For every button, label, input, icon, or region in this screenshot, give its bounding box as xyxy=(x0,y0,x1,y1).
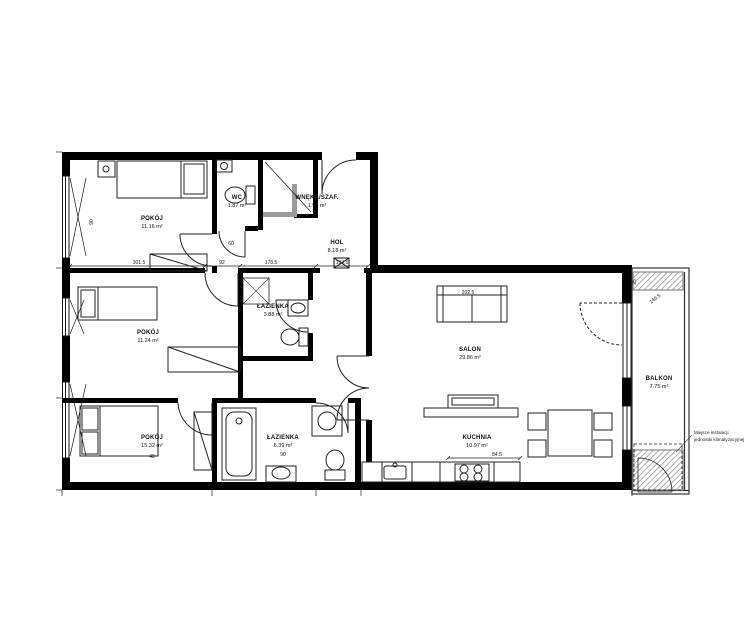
room-label-wc-area: 1.87 m² xyxy=(228,203,247,209)
room-label-balkon-area: 7.75 m² xyxy=(650,384,669,390)
dim-label-6: 90 xyxy=(280,452,286,458)
dim-label-0: 301.5 xyxy=(133,260,146,266)
furniture-niche xyxy=(265,162,311,212)
room-label-pokoj-3-name: POKÓJ xyxy=(141,433,163,441)
ac-note-line-2: jednostki klimatyzacyjnej xyxy=(693,437,744,442)
room-label-pokoj-1-area: 11.16 m² xyxy=(141,224,162,230)
room-label-hol-area: 8.18 m² xyxy=(328,248,347,254)
room-label-balkon-name: BALKON xyxy=(646,376,673,382)
ac-note-line-1: Miejsce instalacji xyxy=(694,430,728,435)
room-label-pokoj-1-name: POKÓJ xyxy=(141,214,163,222)
room-label-lazienka-1-name: ŁAZIENKA xyxy=(257,304,289,310)
floor-plan-drawing: POKÓJ 11.16 m² WC 1.87 m² WNĘKA/SZAF. 1.… xyxy=(0,0,750,625)
room-label-kuchnia-area: 10.97 m² xyxy=(466,443,488,449)
dim-label-8: 90 xyxy=(89,219,95,225)
door-swings xyxy=(178,160,622,435)
room-label-kuchnia-name: KUCHNIA xyxy=(462,435,492,441)
dim-label-2: 178.5 xyxy=(265,260,278,266)
dim-label-11: 146.5 xyxy=(649,293,663,306)
dim-label-1: 92 xyxy=(219,260,225,266)
room-label-wneka-name: WNĘKA/SZAF. xyxy=(295,195,338,201)
dim-label-10: 25 xyxy=(632,279,638,285)
room-label-lazienka-2-name: ŁAZIENKA xyxy=(267,435,299,441)
dim-label-4: 202.5 xyxy=(462,290,475,296)
dim-label-9: 60 xyxy=(228,241,234,247)
floor-plan-canvas: POKÓJ 11.16 m² WC 1.87 m² WNĘKA/SZAF. 1.… xyxy=(0,0,750,625)
room-label-wc-name: WC xyxy=(232,195,243,201)
room-label-salon-area: 29.86 m² xyxy=(459,355,481,361)
ac-unit-note: Miejsce instalacji jednostki klimatyzacy… xyxy=(693,430,744,442)
room-label-lazienka-2-area: 6.39 m² xyxy=(274,443,293,449)
room-label-pokoj-2-name: POKÓJ xyxy=(137,328,159,336)
room-label-salon-name: SALON xyxy=(459,347,481,353)
dim-label-5: 84.5 xyxy=(492,452,502,458)
room-label-pokoj-2-area: 11.24 m² xyxy=(137,338,158,344)
room-label-lazienka-1-area: 3.88 m² xyxy=(264,312,283,318)
room-label-pokoj-3-area: 15.32 m² xyxy=(141,443,163,449)
dim-label-3: 193.5 xyxy=(336,260,349,266)
furniture-salon xyxy=(424,286,612,457)
furniture-kitchen xyxy=(362,462,520,482)
room-label-hol-name: HOL xyxy=(330,240,343,246)
room-label-wneka-area: 1.96 m² xyxy=(308,203,327,209)
dim-label-7: 48 xyxy=(149,454,155,460)
